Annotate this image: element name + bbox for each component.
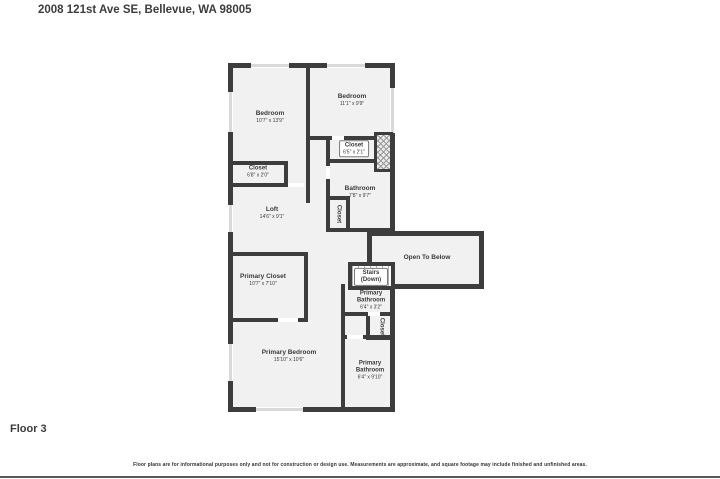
wall-segment (341, 312, 345, 412)
window-marker (228, 344, 233, 381)
room-label-closet-hall: Closet (334, 205, 341, 223)
room-label-primary-bedroom: Primary Bedroom 15'10" x 10'6" (262, 349, 317, 363)
disclaimer-text: Floor plans are for informational purpos… (0, 462, 720, 468)
wall-segment (230, 252, 308, 256)
door-opening (347, 335, 363, 339)
window-marker (228, 92, 233, 132)
floor-label: Floor 3 (10, 423, 47, 435)
hatch-area (374, 132, 393, 172)
room-label-closet-left: Closet 6'8" x 2'0" (247, 165, 269, 178)
wall-segment (346, 196, 350, 232)
room-label-primary-bathroom-lower: Primary Bathroom 6'4" x 9'10" (352, 361, 388, 382)
door-opening (326, 166, 330, 179)
window-marker (390, 88, 395, 133)
room-label-bathroom: Bathroom 7'8" x 9'7" (345, 185, 376, 199)
window-marker (251, 63, 289, 68)
room-label-bedroom-right: Bedroom 11'1" x 9'9" (338, 93, 367, 107)
room-label-closet-primary: Closet (377, 318, 384, 336)
door-opening (288, 183, 304, 187)
floorplan: Bedroom 10'7" x 13'9" Bedroom 11'1" x 9'… (0, 0, 720, 479)
room-label-open-to-below: Open To Below (404, 254, 451, 262)
door-opening (278, 318, 298, 322)
room-label-closet-top-right: Closet 6'5" x 2'1" (339, 140, 369, 157)
window-marker (228, 205, 233, 232)
wall-segment (304, 252, 308, 322)
room-label-primary-closet: Primary Closet 10'7" x 7'10" (240, 273, 286, 287)
door-opening (368, 312, 380, 316)
window-marker (327, 63, 365, 68)
room-label-stairs: Stairs (Down) (354, 268, 388, 286)
window-marker (256, 407, 303, 412)
bottom-divider (0, 476, 720, 478)
wall-segment (230, 183, 288, 187)
room-label-primary-bathroom-upper: Primary Bathroom 6'4" x 3'2" (353, 291, 389, 312)
wall-segment (326, 228, 395, 232)
floorplan-page: 2008 121st Ave SE, Bellevue, WA 98005 (0, 0, 720, 479)
room-label-bedroom-left: Bedroom 10'7" x 13'9" (256, 110, 285, 124)
wall-segment (306, 63, 310, 203)
room-label-loft: Loft 14'6" x 9'1" (260, 206, 285, 220)
